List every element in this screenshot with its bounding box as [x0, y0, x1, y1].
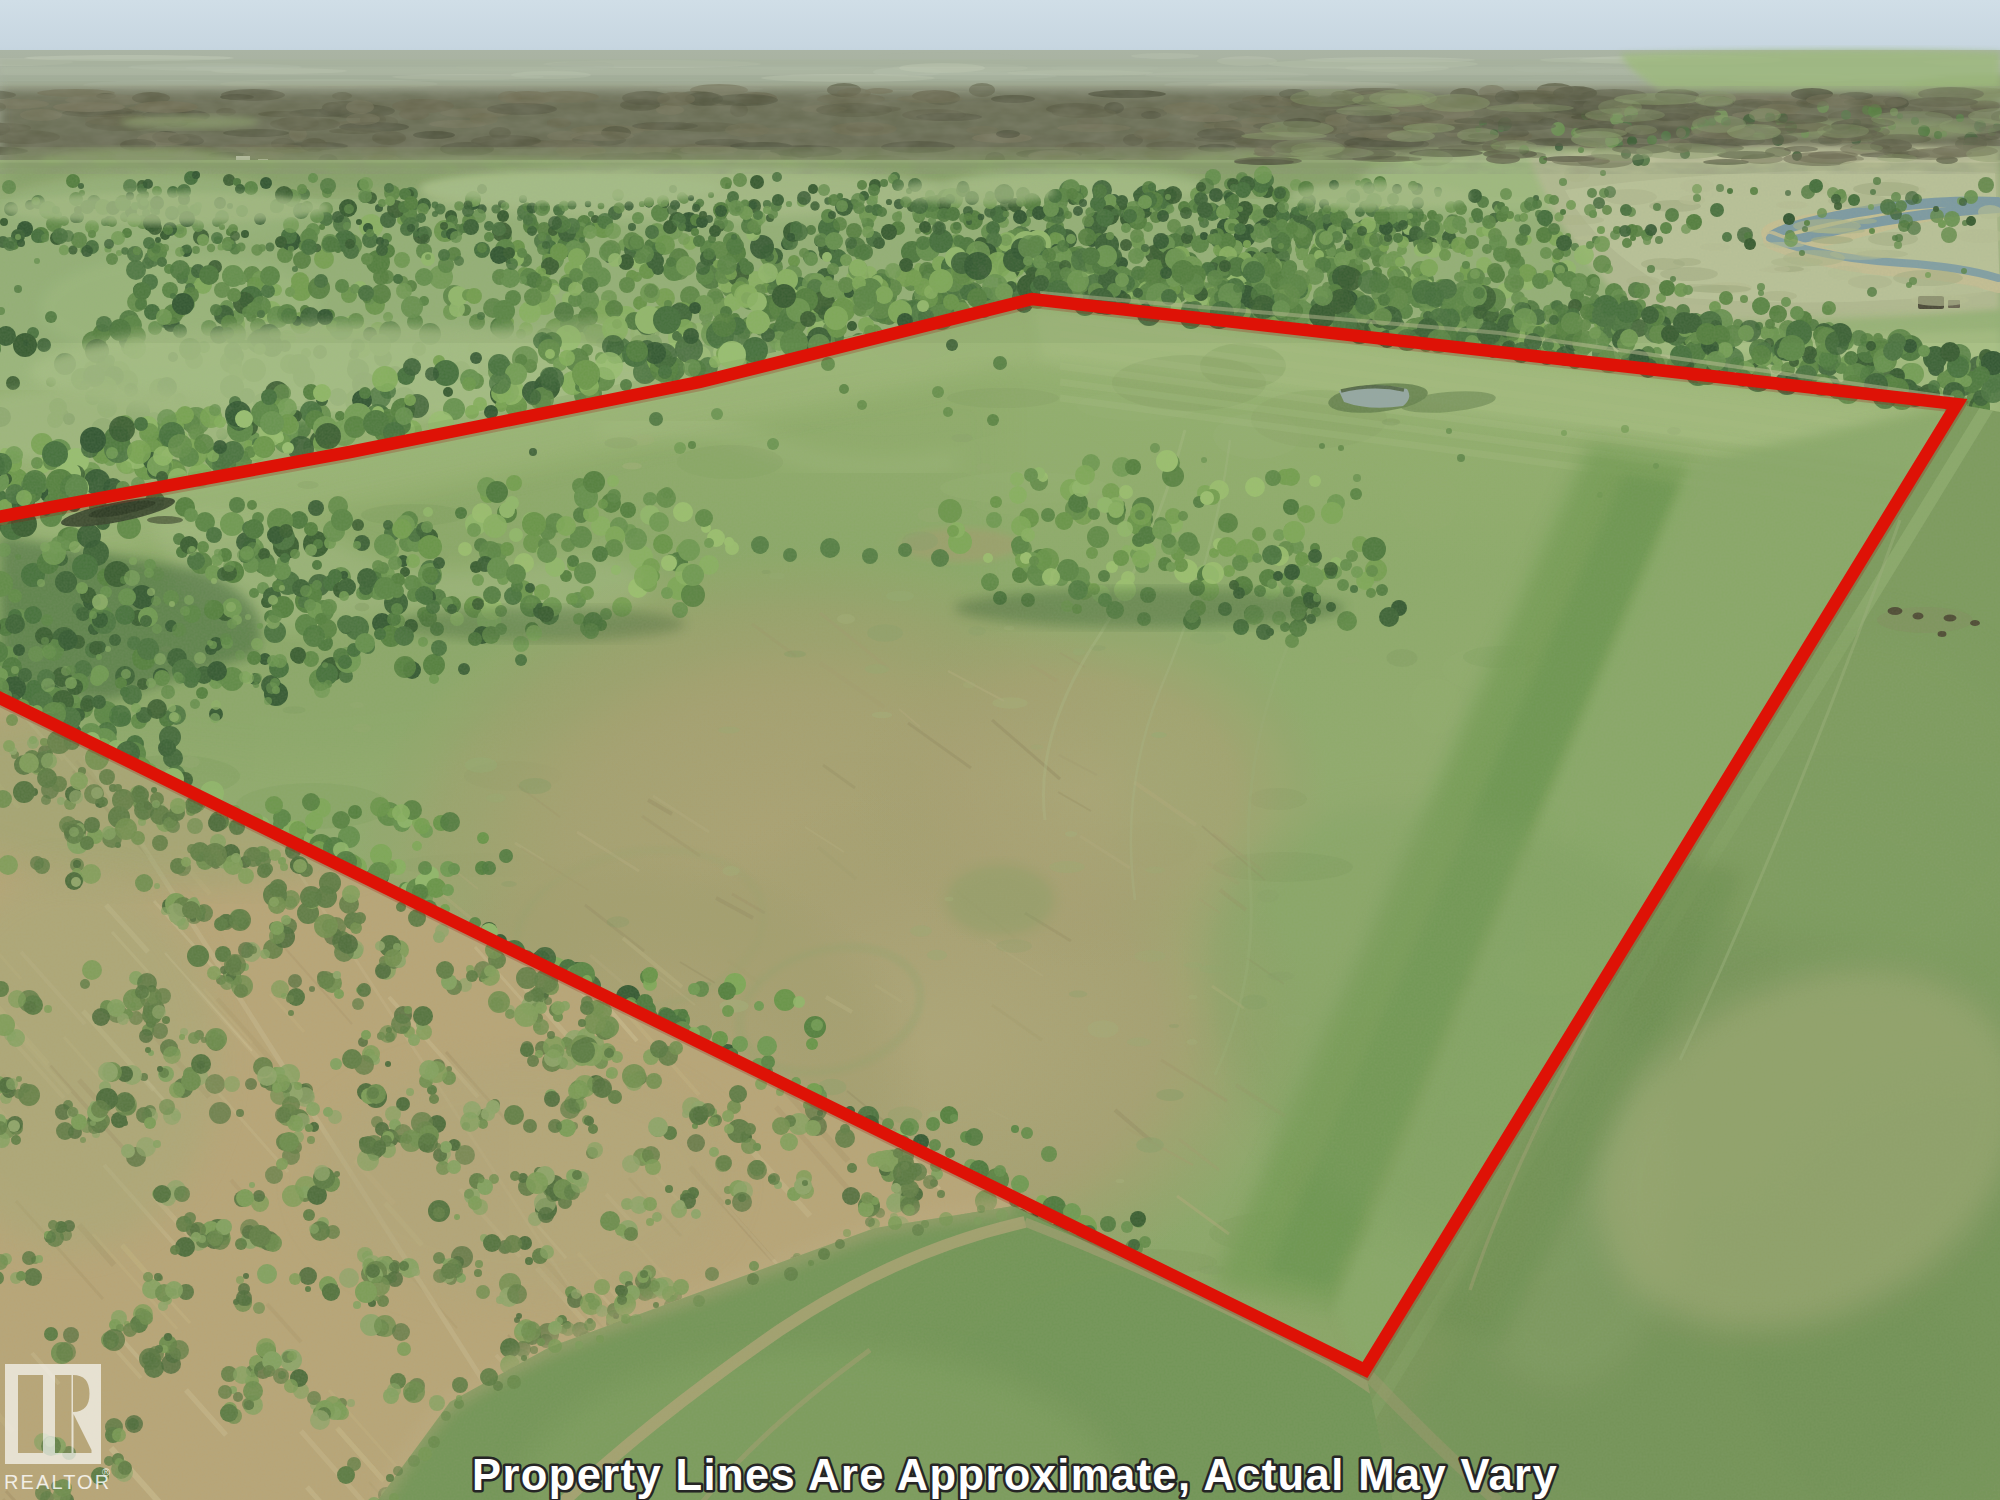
svg-text:REALTOR: REALTOR: [4, 1471, 111, 1493]
svg-text:Property Lines Are Approximate: Property Lines Are Approximate, Actual M…: [472, 1451, 1558, 1499]
svg-text:®: ®: [102, 1466, 110, 1478]
